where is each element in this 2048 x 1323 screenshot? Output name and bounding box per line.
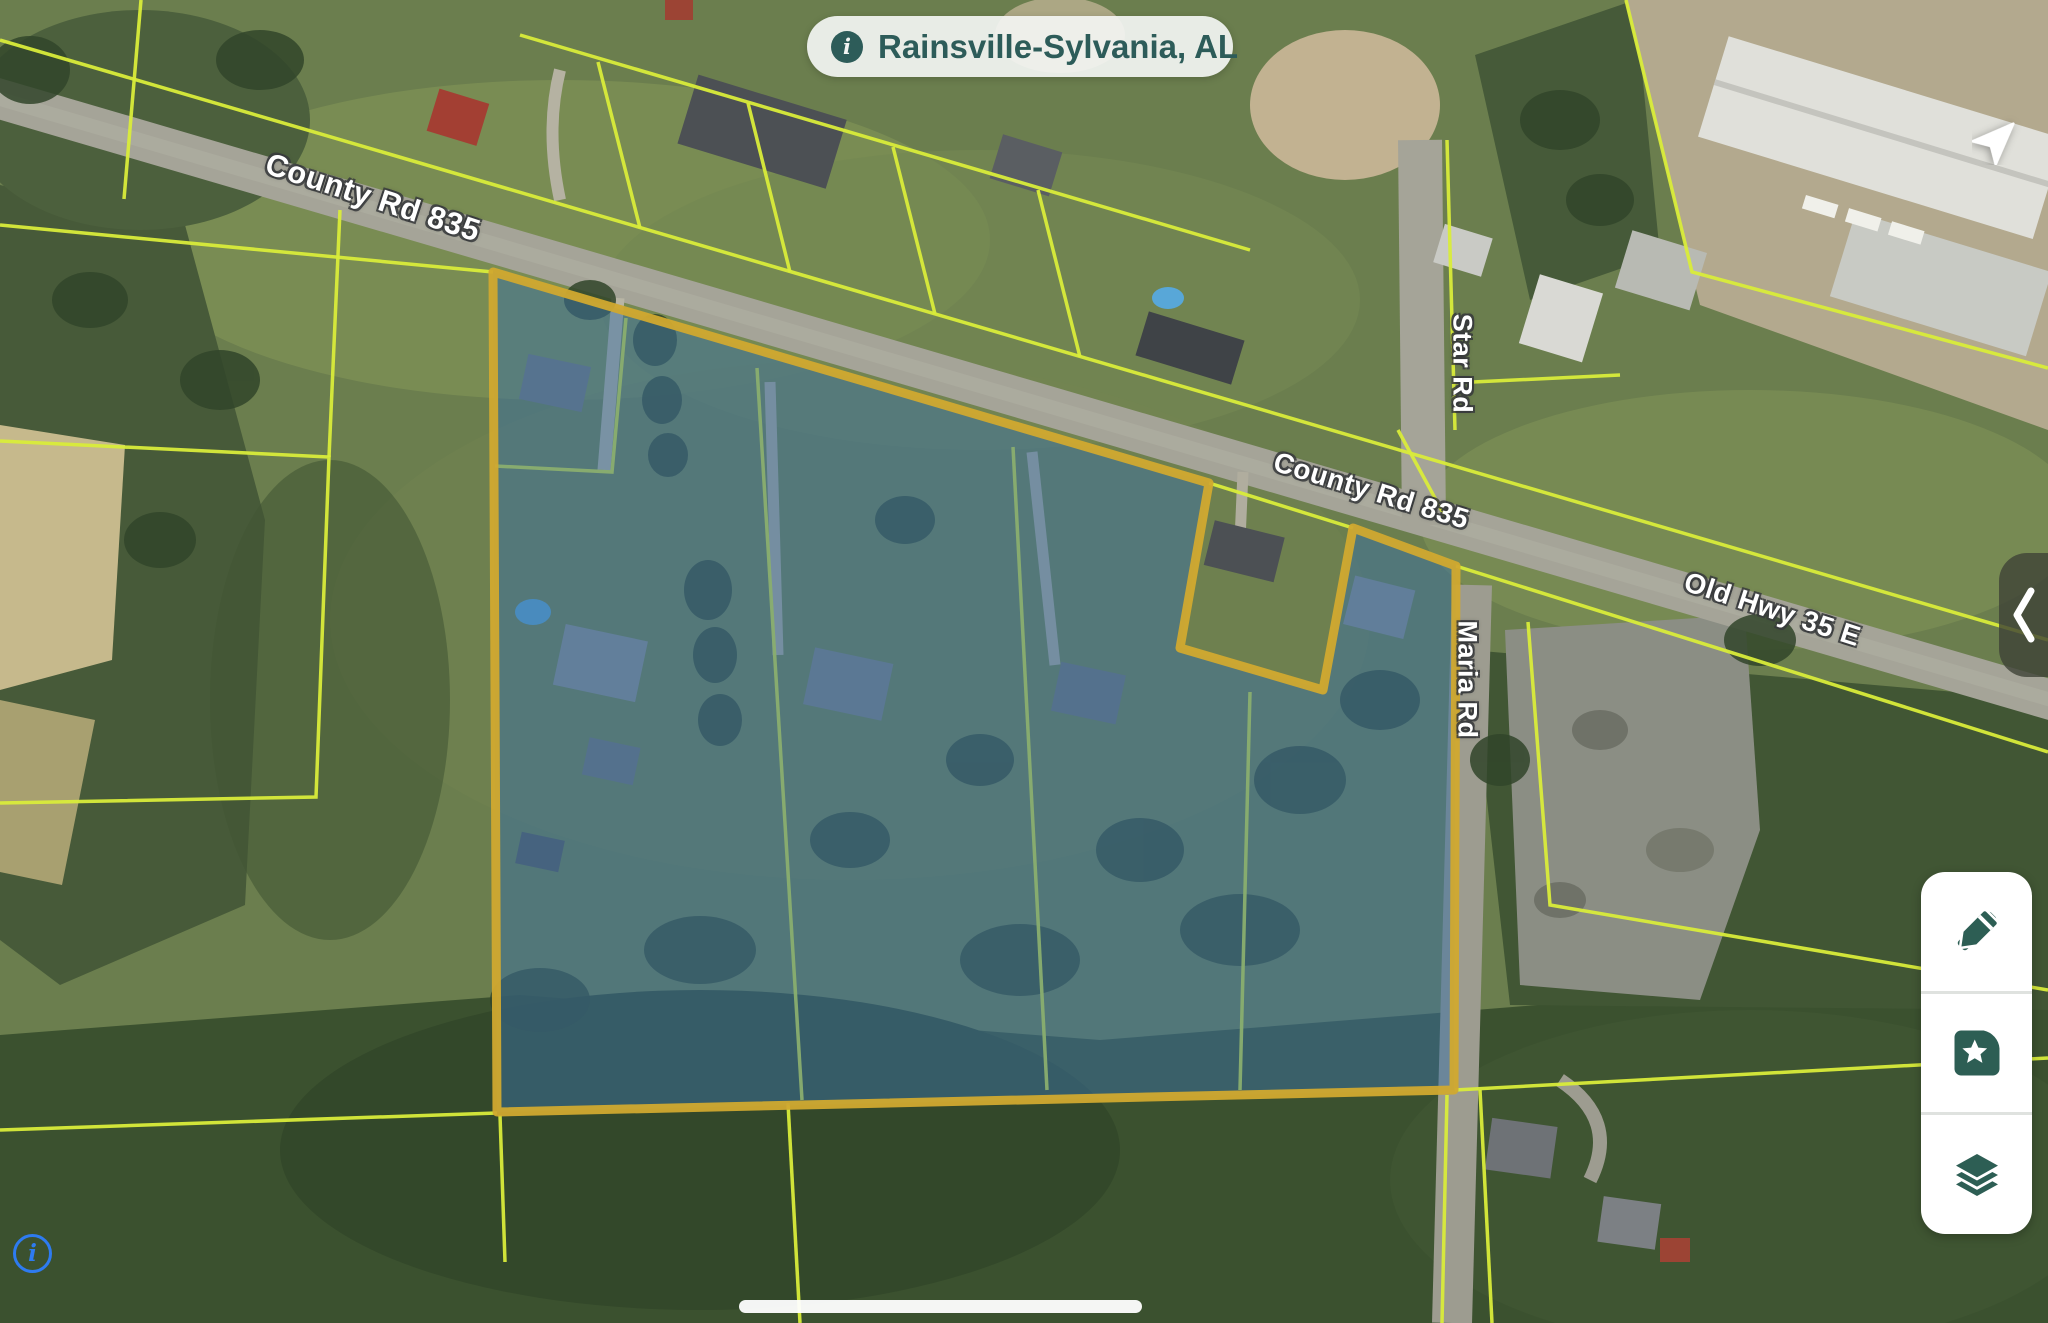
map-layers-button[interactable] [1921, 1115, 2032, 1234]
road-star-rd [1420, 140, 1424, 525]
saved-places-icon [1950, 1026, 2004, 1080]
chevron-left-icon [2011, 583, 2037, 647]
info-icon: i [831, 31, 863, 63]
panel-toggle-tab[interactable] [1999, 553, 2048, 677]
info-outline-icon: i [28, 1240, 37, 1267]
map-layers-icon [1949, 1147, 2005, 1203]
home-indicator[interactable] [739, 1300, 1142, 1313]
saved-places-button[interactable] [1921, 994, 2032, 1113]
attribution-info-button[interactable]: i [13, 1234, 52, 1273]
location-pill[interactable]: i Rainsville-Sylvania, AL [807, 16, 1233, 77]
location-pill-label: Rainsville-Sylvania, AL [878, 28, 1238, 66]
map-tool-stack [1921, 872, 2032, 1234]
map-screen: County Rd 835 County Rd 835 Old Hwy 35 E… [0, 0, 2048, 1323]
satellite-map[interactable] [0, 0, 2048, 1323]
navigation-arrow-icon [1972, 113, 2024, 165]
draw-parcel-icon [1949, 903, 2005, 959]
locate-button[interactable] [1962, 103, 2034, 175]
draw-parcel-button[interactable] [1921, 872, 2032, 991]
